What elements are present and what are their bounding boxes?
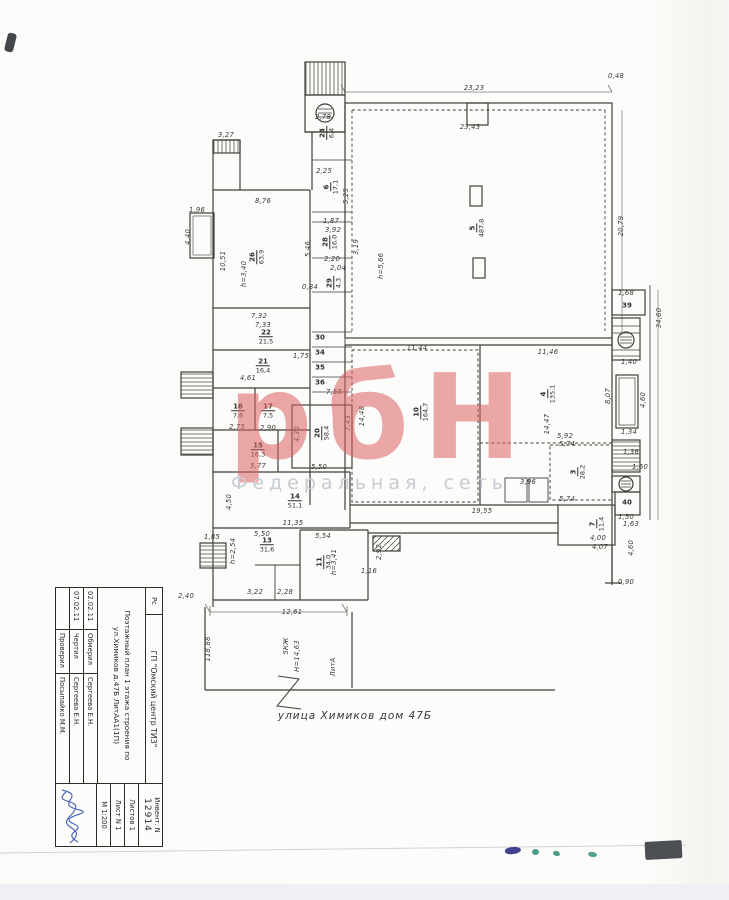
- break-line-symbol: [277, 676, 301, 709]
- stamp-person-name: Сергеева Е.Н.: [84, 674, 97, 783]
- scan-artifact: [532, 849, 539, 855]
- stamp-role: Чертил: [70, 630, 83, 674]
- stamp-date: 02.02.11: [84, 588, 97, 630]
- stair-steps: [612, 326, 640, 356]
- inventory-number-cell: Инвент. N 12914: [138, 784, 162, 846]
- organization-name: ГП "Омский центр ТИЗ": [146, 615, 162, 783]
- stamp-role: Обмерил: [84, 630, 97, 674]
- lift-symbol: [620, 337, 632, 343]
- sheets-count: Листов 1: [124, 784, 138, 846]
- stamp-person-name: Сергеева Е.Н.: [70, 674, 83, 783]
- watermark-logo: рбН: [228, 358, 536, 476]
- stamp-date: [56, 588, 69, 630]
- scale-label: М 1:200: [96, 784, 110, 846]
- stamp-person-name: Посыпайко М.М.: [56, 674, 69, 783]
- inventory-number: 12914: [140, 798, 152, 832]
- title-block-side: Инвент. N 12914 Листов 1 Лист N 1 М 1:20…: [56, 784, 162, 846]
- entrance-stair-hatch: [200, 543, 226, 568]
- inventory-label: Инвент. N: [152, 797, 161, 833]
- scanned-floor-plan-page: 23,2323,430,483,272,782,258,761,964,4010…: [0, 0, 729, 900]
- column: [473, 258, 485, 278]
- title-block: Рс ГП "Омский центр ТИЗ" Поэтажный план …: [55, 587, 163, 847]
- title-block-main: Рс ГП "Омский центр ТИЗ" Поэтажный план …: [56, 588, 162, 784]
- stair-hatch: [305, 62, 345, 95]
- signature-rows: 02.02.11 Обмерил Сергеева Е.Н. 07.02.11 …: [56, 588, 97, 783]
- ramp-hatch: [373, 536, 400, 551]
- sheet-number: Лист N 1: [110, 784, 124, 846]
- stamp-role: Проверил: [56, 630, 69, 674]
- stair-hatch: [612, 440, 640, 472]
- stamp-date: 07.02.11: [70, 588, 83, 630]
- stamp-row: Проверил Посыпайко М.М.: [56, 588, 69, 783]
- scan-artifact: [0, 884, 729, 900]
- document-title: Поэтажный план 1 этажа строения по ул.Хи…: [97, 588, 145, 783]
- stamp-corner-label: Рс: [146, 588, 162, 615]
- stamp-row: 07.02.11 Чертил Сергеева Е.Н.: [69, 588, 83, 783]
- entrance-stair-hatch: [181, 428, 213, 455]
- stamp-row: 02.02.11 Обмерил Сергеева Е.Н.: [83, 588, 97, 783]
- column: [470, 186, 482, 206]
- scan-artifact: [645, 840, 683, 860]
- lift-symbol: [621, 481, 631, 487]
- signature-scribble: [56, 786, 96, 846]
- stair-hatch: [213, 140, 240, 153]
- street-address-label: улица Химиков дом 47Б: [278, 710, 432, 722]
- watermark-subtitle: Федеральная, сеть: [231, 472, 508, 494]
- entrance-stair-hatch: [181, 372, 213, 398]
- lift-symbol: [318, 109, 332, 117]
